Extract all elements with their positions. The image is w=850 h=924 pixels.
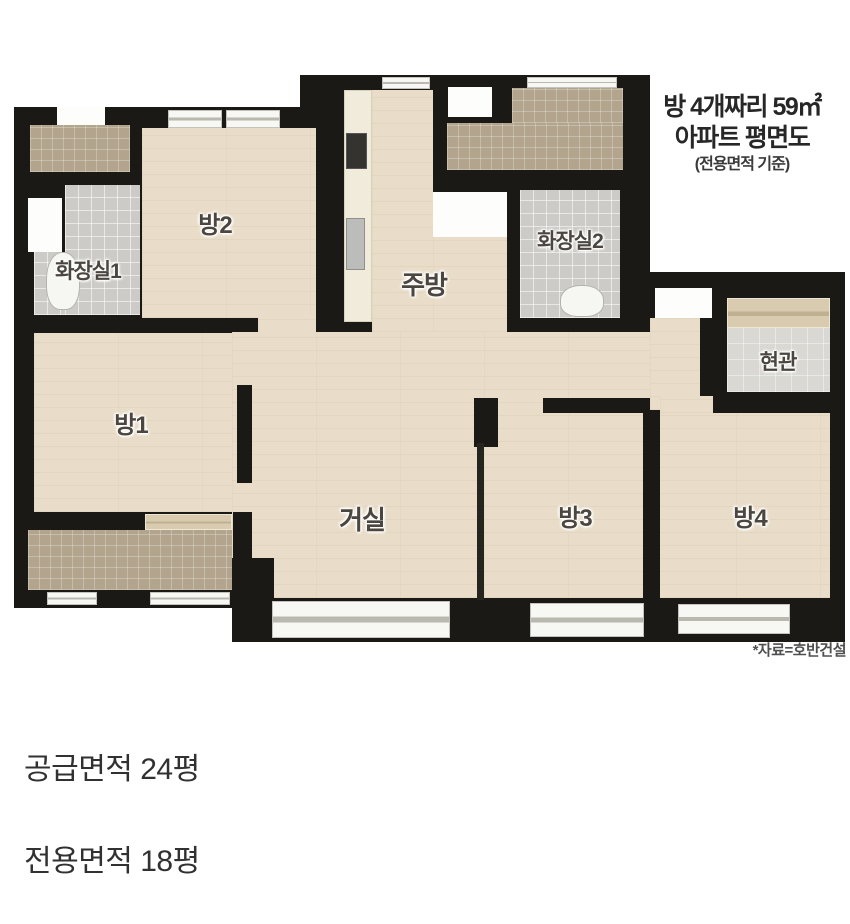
closet: [28, 198, 62, 252]
window: [47, 592, 97, 605]
window: [527, 77, 617, 88]
balcony-floor: [447, 123, 623, 170]
room1-label: 방1: [86, 407, 176, 437]
window: [530, 603, 644, 637]
window: [678, 604, 790, 634]
window: [226, 110, 280, 128]
wall: [643, 405, 660, 612]
window: [150, 592, 230, 605]
room3-label: 방3: [530, 500, 620, 530]
kitchen-label: 주방: [379, 268, 469, 298]
wall: [237, 385, 252, 483]
wall: [474, 398, 498, 447]
source-note: *자료=호반건설: [753, 639, 846, 660]
wall: [232, 558, 274, 642]
stove-icon: [346, 133, 367, 169]
exclusive-area-text: 전용면적 18평: [24, 836, 200, 880]
window: [168, 110, 222, 128]
refrigerator-icon: [346, 218, 365, 270]
plan-title-line3: (전용면적 기준): [634, 155, 850, 175]
kitchen-counter: [344, 90, 372, 322]
bathroom2-counter: [433, 192, 507, 237]
window: [655, 288, 712, 318]
window: [448, 87, 492, 117]
plan-title-line2: 아파트 평면도: [634, 123, 850, 154]
window: [145, 514, 232, 530]
shoe-cabinet: [727, 298, 830, 328]
balcony-floor: [512, 88, 623, 123]
balcony-floor: [30, 125, 130, 172]
room4-label: 방4: [705, 500, 795, 530]
window: [272, 601, 450, 638]
plan-title: 방 4개짜리 59㎡ 아파트 평면도 (전용면적 기준): [634, 92, 850, 175]
bathroom1-label: 화장실1: [40, 256, 136, 284]
floor-plan-page: 방2 화장실1 주방 화장실2 현관 방1 거실 방3 방4 방 4개짜리 59…: [0, 0, 850, 924]
supply-area-text: 공급면적 24평: [24, 744, 200, 788]
window: [382, 77, 430, 89]
bathroom2-label: 화장실2: [522, 226, 618, 254]
wall: [477, 443, 484, 600]
room2-label: 방2: [170, 207, 260, 237]
entry-label: 현관: [730, 347, 826, 375]
door-opening: [660, 396, 713, 413]
plan-title-line1: 방 4개짜리 59㎡: [634, 92, 850, 123]
living-room-label: 거실: [317, 503, 407, 533]
toilet-fixture: [560, 285, 604, 317]
door-opening: [258, 315, 316, 333]
balcony-floor: [28, 530, 232, 590]
